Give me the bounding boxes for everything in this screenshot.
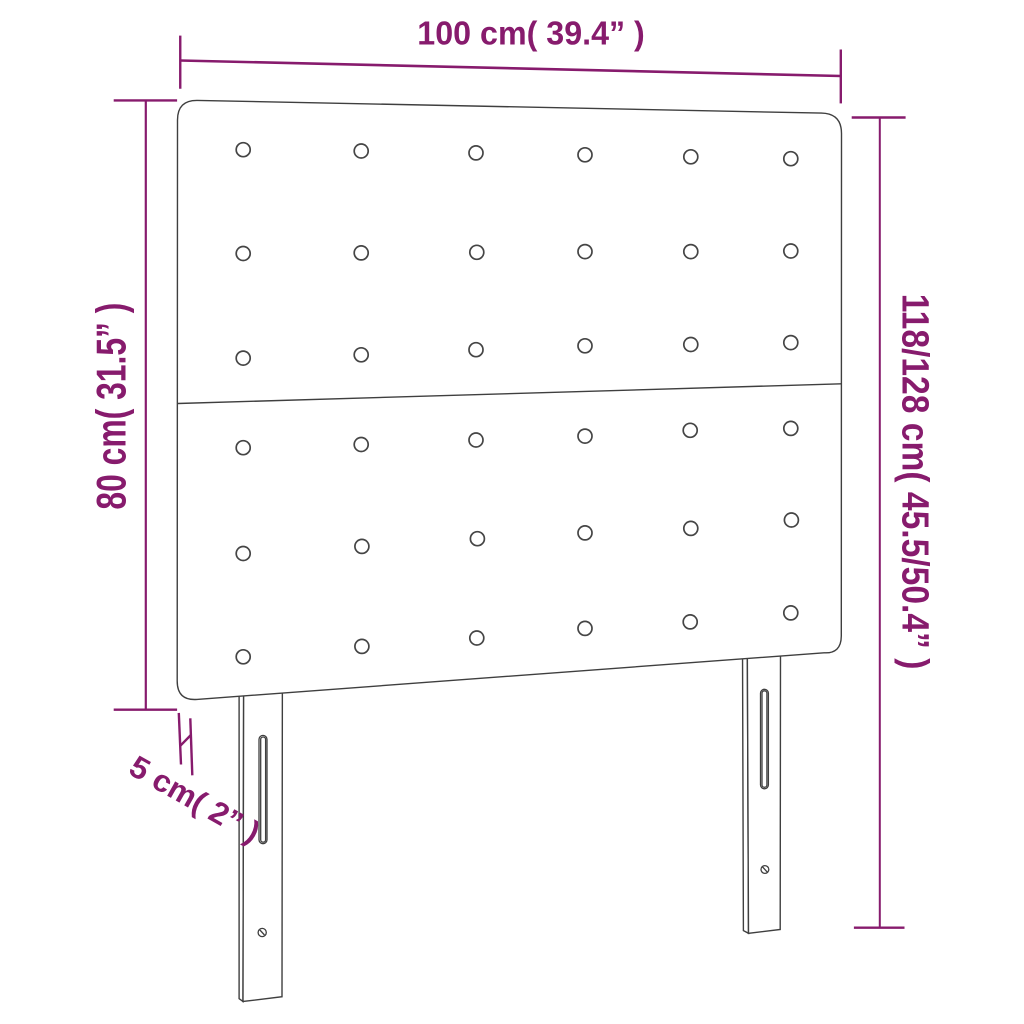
svg-text:80 cm( 31.5” ): 80 cm( 31.5” ): [88, 303, 135, 510]
svg-text:100 cm( 39.4” ): 100 cm( 39.4” ): [417, 15, 645, 52]
svg-text:118/128 cm( 45.5/50.4” ): 118/128 cm( 45.5/50.4” ): [895, 294, 937, 670]
